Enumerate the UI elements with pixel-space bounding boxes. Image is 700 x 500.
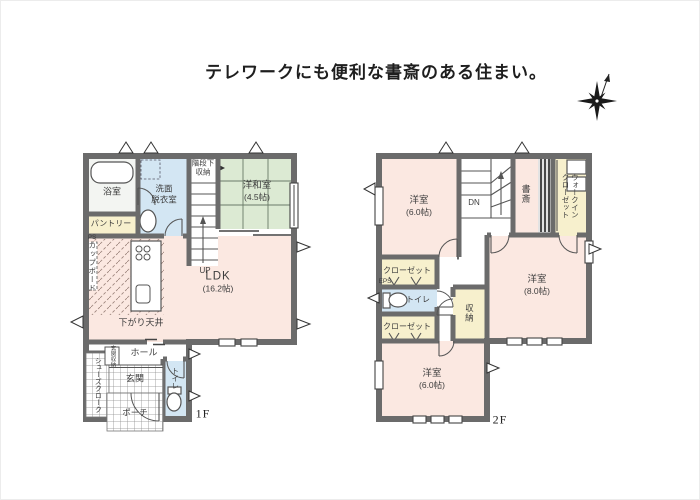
floorplan-drawing — [1, 1, 700, 500]
label-shoes-closet: シューズクローク — [93, 357, 102, 413]
label-bath: 浴室 — [103, 186, 121, 197]
label-washroom-line2: 脱衣室 — [151, 194, 177, 205]
label-hall: ホール — [130, 347, 157, 358]
label-stair-storage-line1: 階段下 — [192, 159, 215, 168]
label-stair-storage: 階段下 収納 — [192, 159, 215, 178]
label-entrance-storage: 玄関収納 — [109, 345, 116, 367]
label-closet-south: クローゼット — [383, 322, 431, 332]
floor1-plan — [71, 142, 310, 431]
label-closet-north: クローゼット — [383, 266, 431, 276]
label-toilet-2f: トイレ — [406, 295, 430, 305]
label-bedroom-east-size: (8.0帖) — [524, 286, 550, 297]
tatami-sliding-door — [219, 231, 293, 235]
label-toilet-1f: トイレ — [170, 367, 179, 390]
label-dn: DN — [468, 198, 480, 208]
label-washroom: 洗面 脱衣室 — [151, 183, 177, 204]
label-bedroom-south-name: 洋室 — [419, 368, 445, 380]
label-bedroom-nw: 洋室 (6.0帖) — [406, 195, 432, 218]
kitchen-counter-icon — [131, 241, 161, 311]
label-eps: EPS — [378, 278, 391, 286]
label-washroom-line1: 洗面 — [151, 183, 177, 194]
label-storage: 収納 — [464, 304, 475, 323]
stairs-area-2f — [459, 156, 513, 218]
label-ldk-size: (16.2帖) — [203, 284, 234, 295]
label-bedroom-east-name: 洋室 — [524, 274, 550, 286]
toilet-icon-2f — [383, 293, 407, 308]
label-bedroom-south: 洋室 (6.0帖) — [419, 368, 445, 391]
label-wic-line2: クローゼット — [561, 174, 570, 219]
label-tatami-size: (4.5帖) — [243, 192, 272, 203]
label-ldk-name: LDK — [203, 270, 234, 284]
label-bedroom-east: 洋室 (8.0帖) — [524, 274, 550, 297]
toilet-icon-1f — [167, 387, 181, 411]
label-bedroom-south-size: (6.0帖) — [419, 380, 445, 391]
floor-label-2f: 2F — [493, 413, 508, 428]
label-bedroom-nw-name: 洋室 — [406, 195, 432, 207]
label-wic-line1: ウォークイン — [570, 174, 579, 219]
label-pantry: パントリー — [91, 219, 131, 229]
label-stair-storage-line2: 収納 — [192, 168, 215, 177]
label-walkin-closet: ウォークイン クローゼット — [561, 174, 580, 219]
bathtub-icon — [91, 162, 133, 183]
compass-icon — [577, 74, 617, 121]
label-ldk: LDK (16.2帖) — [203, 270, 234, 295]
label-study: 書斎 — [519, 184, 530, 204]
floorplan-page: テレワークにも便利な書斎のある住まい。 — [0, 0, 700, 500]
label-bedroom-nw-size: (6.0帖) — [406, 207, 432, 218]
label-entrance: 玄関 — [126, 373, 144, 384]
label-lowered-ceiling: 下がり天井 — [118, 317, 163, 328]
basin-icon — [140, 210, 156, 232]
label-tatami-name: 洋和室 — [243, 180, 272, 192]
label-tatami-room: 洋和室 (4.5帖) — [243, 180, 272, 203]
floor-label-1f: 1F — [196, 407, 211, 422]
label-cupboard: カップボード — [87, 242, 96, 293]
label-porch: ポーチ — [122, 408, 148, 419]
